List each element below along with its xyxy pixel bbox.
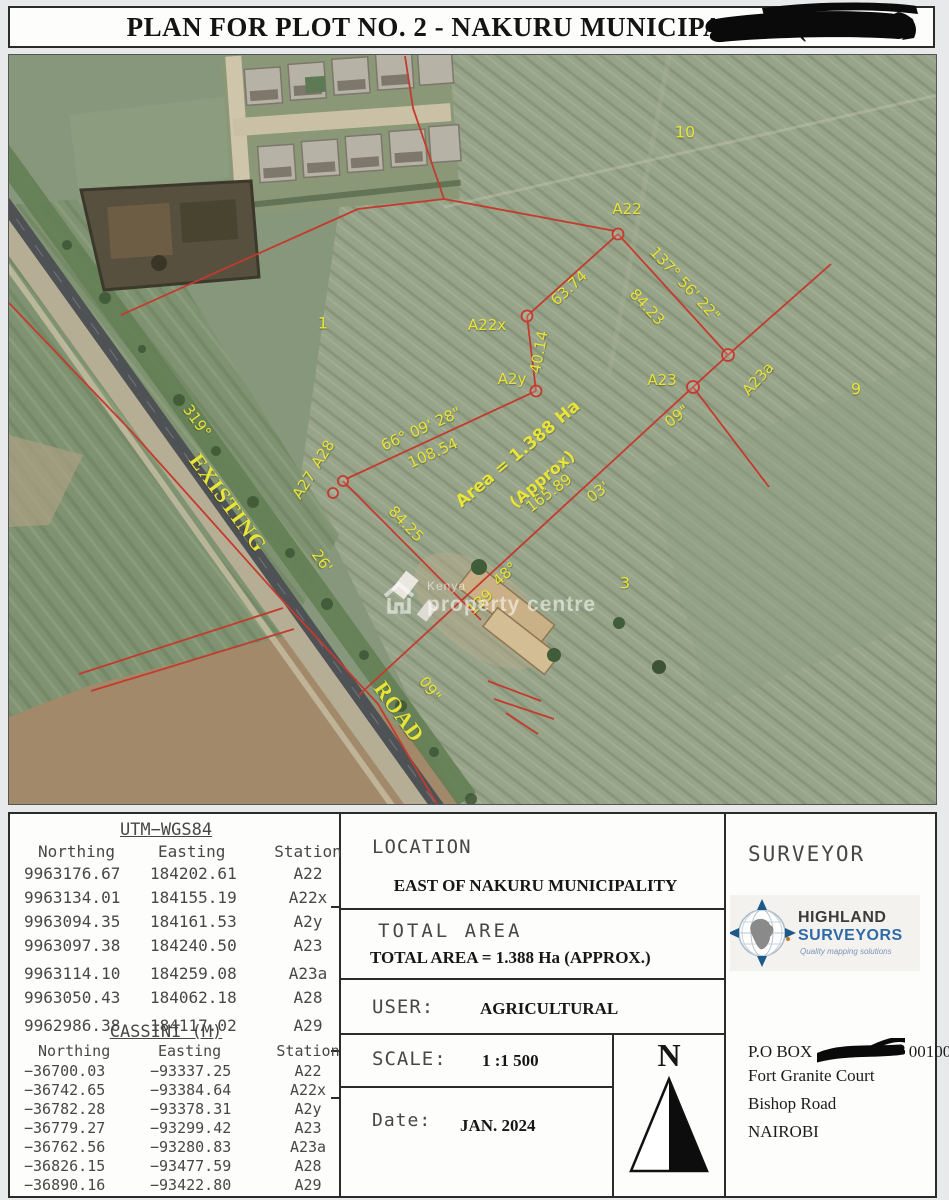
table-cell: 184259.08 bbox=[150, 964, 270, 983]
date-label: Date: bbox=[372, 1110, 431, 1131]
walled-compound bbox=[81, 181, 259, 290]
housing-estate bbox=[221, 55, 463, 215]
north-arrow-icon bbox=[614, 1035, 724, 1195]
table-cell: A22x bbox=[270, 888, 346, 907]
table-cell: 9963134.01 bbox=[24, 888, 150, 907]
logo-tagline: Quality mapping solutions bbox=[800, 947, 892, 956]
survey-plan-page: PLAN FOR PLOT NO. 2 - NAKURU MUNICIPALIT… bbox=[0, 0, 949, 1200]
table-cell: A23a bbox=[270, 964, 346, 983]
table-cell: 184240.50 bbox=[150, 936, 270, 955]
table-row: 9963176.67184202.61A22 bbox=[10, 864, 344, 883]
cassini-table-title: CASSINI (M) bbox=[16, 1022, 316, 1042]
map-label: 3 bbox=[620, 574, 630, 593]
divider bbox=[339, 908, 726, 910]
map-label: 1 bbox=[318, 314, 328, 333]
page-title: PLAN FOR PLOT NO. 2 - NAKURU MUNICIPALIT… bbox=[127, 12, 817, 43]
table-cell: A22 bbox=[270, 864, 346, 883]
address-line-2: Bishop Road bbox=[748, 1094, 836, 1114]
table-cell: −36782.28 bbox=[24, 1100, 150, 1118]
table-cell: 184155.19 bbox=[150, 888, 270, 907]
aerial-map: 10193A22A22xA2yA23A23aA28A2763.7440.1413… bbox=[8, 54, 937, 805]
surveyor-label: SURVEYOR bbox=[748, 842, 865, 866]
user-value: AGRICULTURAL bbox=[480, 999, 618, 1019]
table-cell: −36779.27 bbox=[24, 1119, 150, 1137]
table-cell: −36890.16 bbox=[24, 1176, 150, 1194]
photo-watermark: Kenya property centre bbox=[379, 580, 596, 616]
divider bbox=[339, 1086, 612, 1088]
north-arrow: N bbox=[614, 1035, 724, 1195]
map-label: A2y bbox=[498, 370, 527, 388]
table-row: −36779.27−93299.42A23 bbox=[10, 1119, 344, 1137]
map-label: A22x bbox=[468, 316, 506, 334]
scale-label: SCALE: bbox=[372, 1048, 447, 1070]
table-cell: −36700.03 bbox=[24, 1062, 150, 1080]
watermark-property-centre: property centre bbox=[427, 594, 596, 615]
map-label: A23 bbox=[647, 371, 676, 389]
table-cell: 9963094.35 bbox=[24, 912, 150, 931]
table-cell: A2y bbox=[270, 1100, 346, 1118]
table-cell: −36826.15 bbox=[24, 1157, 150, 1175]
table-cell: 184062.18 bbox=[150, 988, 270, 1007]
table-cell: A22x bbox=[270, 1081, 346, 1099]
table-row: 9963097.38184240.50A23 bbox=[10, 936, 344, 955]
table-cell: 184202.61 bbox=[150, 864, 270, 883]
cassini-table-header: Northing Easting Station bbox=[10, 1042, 344, 1060]
location-value: EAST OF NAKURU MUNICIPALITY bbox=[348, 876, 723, 896]
watermark-house-icon bbox=[379, 580, 419, 616]
address-line-1: Fort Granite Court bbox=[748, 1066, 875, 1086]
table-cell: A23 bbox=[270, 936, 346, 955]
table-cell: −36762.56 bbox=[24, 1138, 150, 1156]
date-value: JAN. 2024 bbox=[460, 1116, 536, 1136]
location-label: LOCATION bbox=[372, 836, 472, 858]
scale-value: 1 :1 500 bbox=[482, 1051, 539, 1071]
table-cell: −93477.59 bbox=[150, 1157, 270, 1175]
table-cell: −93299.42 bbox=[150, 1119, 270, 1137]
table-row: −36890.16−93422.80A29 bbox=[10, 1176, 344, 1194]
table-row: 9963114.10184259.08A23a bbox=[10, 964, 344, 983]
table-cell: 9963176.67 bbox=[24, 864, 150, 883]
table-cell: −93422.80 bbox=[150, 1176, 270, 1194]
table-row: −36782.28−93378.31A2y bbox=[10, 1100, 344, 1118]
table-cell: −93384.64 bbox=[150, 1081, 270, 1099]
table-row: −36762.56−93280.83A23a bbox=[10, 1138, 344, 1156]
table-row: 9963050.43184062.18A28 bbox=[10, 988, 344, 1007]
satellite-imagery bbox=[9, 55, 937, 805]
po-box-line: P.O BOX 00100 bbox=[748, 1038, 949, 1064]
table-cell: A28 bbox=[270, 988, 346, 1007]
table-row: −36700.03−93337.25A22 bbox=[10, 1062, 344, 1080]
table-cell: 9963114.10 bbox=[24, 964, 150, 983]
table-cell: A2y bbox=[270, 912, 346, 931]
map-label: A22 bbox=[612, 200, 641, 218]
user-label: USER: bbox=[372, 996, 434, 1018]
table-row: −36742.65−93384.64A22x bbox=[10, 1081, 344, 1099]
map-label: 10 bbox=[675, 123, 695, 142]
map-label: 9 bbox=[851, 380, 861, 399]
table-cell: 184161.53 bbox=[150, 912, 270, 931]
table-cell: A28 bbox=[270, 1157, 346, 1175]
table-cell: A23 bbox=[270, 1119, 346, 1137]
table-cell: 9963097.38 bbox=[24, 936, 150, 955]
table-cell: −93378.31 bbox=[150, 1100, 270, 1118]
watermark-kenya: Kenya bbox=[427, 580, 596, 592]
table-cell: −36742.65 bbox=[24, 1081, 150, 1099]
table-row: −36826.15−93477.59A28 bbox=[10, 1157, 344, 1175]
utm-table-title: UTM−WGS84 bbox=[16, 820, 316, 840]
total-area-label: TOTAL AREA bbox=[378, 920, 522, 942]
divider bbox=[724, 814, 726, 1196]
logo-line1: HIGHLAND bbox=[798, 909, 886, 927]
utm-table-header: Northing Easting Station bbox=[10, 842, 344, 861]
table-cell: A23a bbox=[270, 1138, 346, 1156]
highland-surveyors-logo: HIGHLAND SURVEYORS Quality mapping solut… bbox=[730, 895, 920, 971]
divider bbox=[339, 978, 726, 980]
title-bar: PLAN FOR PLOT NO. 2 - NAKURU MUNICIPALIT… bbox=[8, 6, 935, 48]
table-row: 9963094.35184161.53A2y bbox=[10, 912, 344, 931]
table-row: 9963134.01184155.19A22x bbox=[10, 888, 344, 907]
table-cell: −93337.25 bbox=[150, 1062, 270, 1080]
table-cell: 9963050.43 bbox=[24, 988, 150, 1007]
address-line-3: NAIROBI bbox=[748, 1122, 819, 1142]
logo-line2: SURVEYORS bbox=[798, 927, 903, 945]
table-cell: A29 bbox=[270, 1176, 346, 1194]
title-block-panel: UTM−WGS84 Northing Easting Station 99631… bbox=[8, 812, 937, 1198]
table-cell: A22 bbox=[270, 1062, 346, 1080]
table-cell: −93280.83 bbox=[150, 1138, 270, 1156]
po-box-redaction bbox=[817, 1038, 905, 1064]
total-area-value: TOTAL AREA = 1.388 Ha (APPROX.) bbox=[370, 948, 651, 968]
